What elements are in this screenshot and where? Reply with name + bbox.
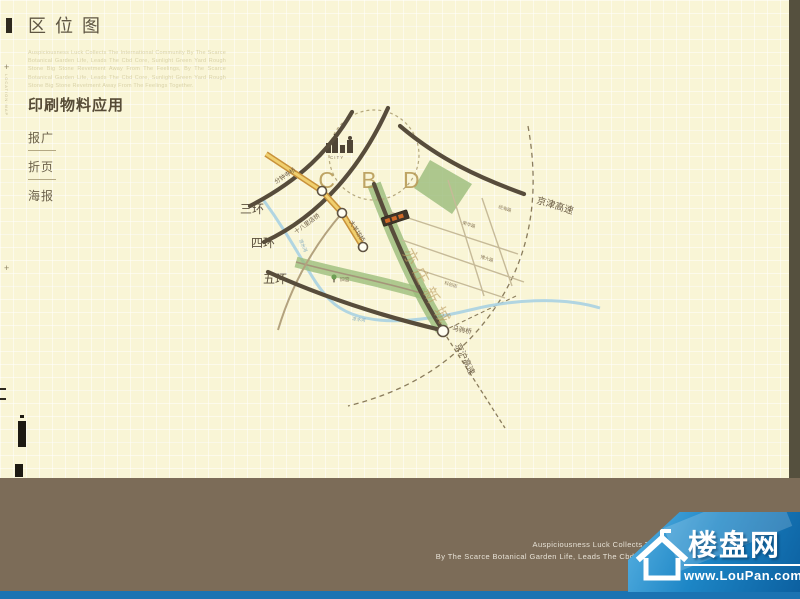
river-label: 凉水河	[298, 238, 309, 253]
jingjin-expressway-label: 京津高速	[535, 194, 575, 217]
jinghu-expressway-line	[443, 331, 505, 428]
jinghu-expressway-label: 京沪高速	[453, 341, 477, 376]
street-label: 经海路	[497, 203, 512, 214]
poi-label: 旧宫	[340, 276, 350, 283]
poi-icon	[331, 274, 336, 282]
canvas-background: 区位图 + LOCATION·MAP + Auspiciousness Luck…	[0, 0, 800, 599]
ring3-label: 三环	[240, 202, 264, 216]
bridge-majuqiao-label: 马驹桥	[452, 323, 473, 336]
city-tag-label: CITY	[330, 155, 344, 160]
ring5-label: 五环	[263, 272, 287, 286]
ring4-label: 四环	[251, 236, 275, 250]
bottom-blue-strip	[0, 591, 800, 599]
watermark-brand: 楼盘网	[688, 522, 781, 564]
street-label: 博大路	[479, 253, 494, 264]
watermark-url[interactable]: www.LouPan.com	[684, 564, 800, 583]
